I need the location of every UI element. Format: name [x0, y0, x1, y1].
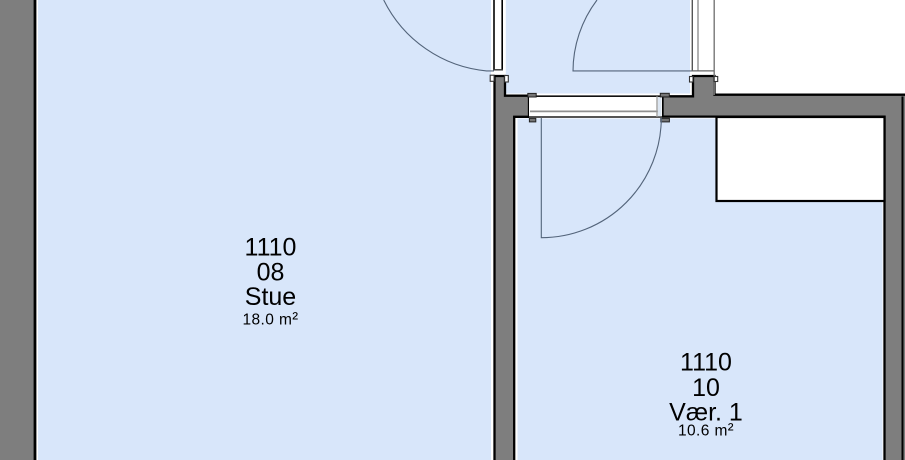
svg-text:10: 10 [692, 374, 720, 402]
svg-text:Stue: Stue [245, 283, 296, 311]
svg-text:18.0 m²: 18.0 m² [242, 309, 298, 329]
svg-text:10.6 m²: 10.6 m² [678, 420, 734, 440]
svg-text:1110: 1110 [245, 233, 297, 261]
svg-text:1110: 1110 [680, 349, 732, 377]
